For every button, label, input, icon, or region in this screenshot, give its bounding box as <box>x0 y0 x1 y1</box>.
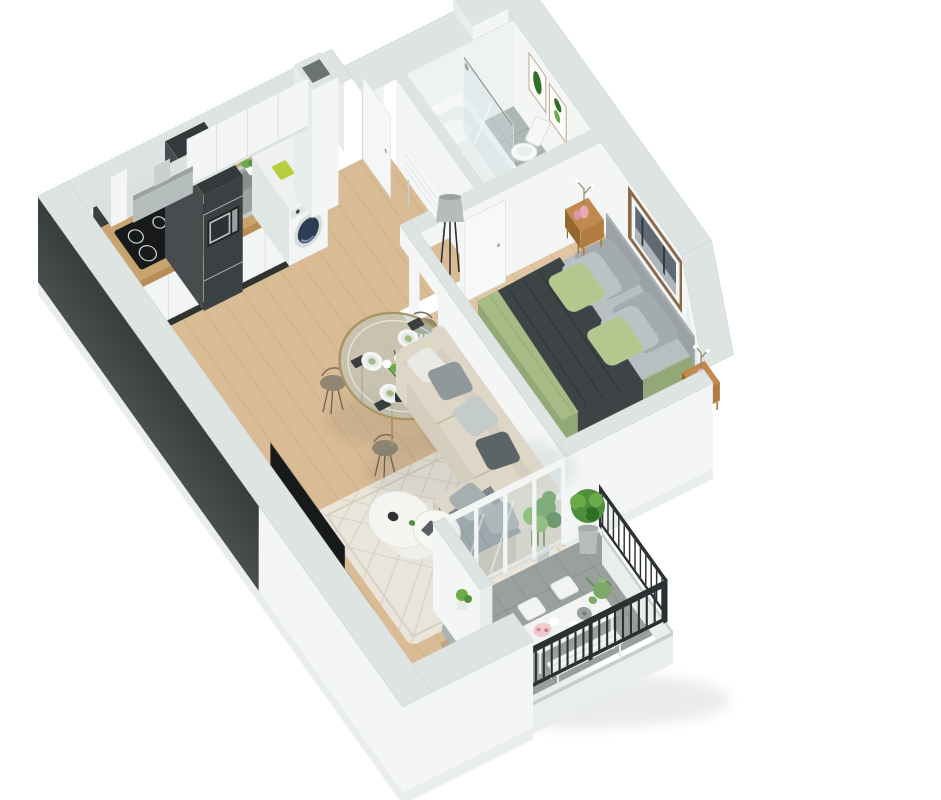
apartment-3d-floorplan <box>0 0 941 800</box>
tall-unit-front <box>204 176 243 311</box>
duct-column <box>294 52 338 218</box>
floorplan-render-stage <box>0 0 941 800</box>
